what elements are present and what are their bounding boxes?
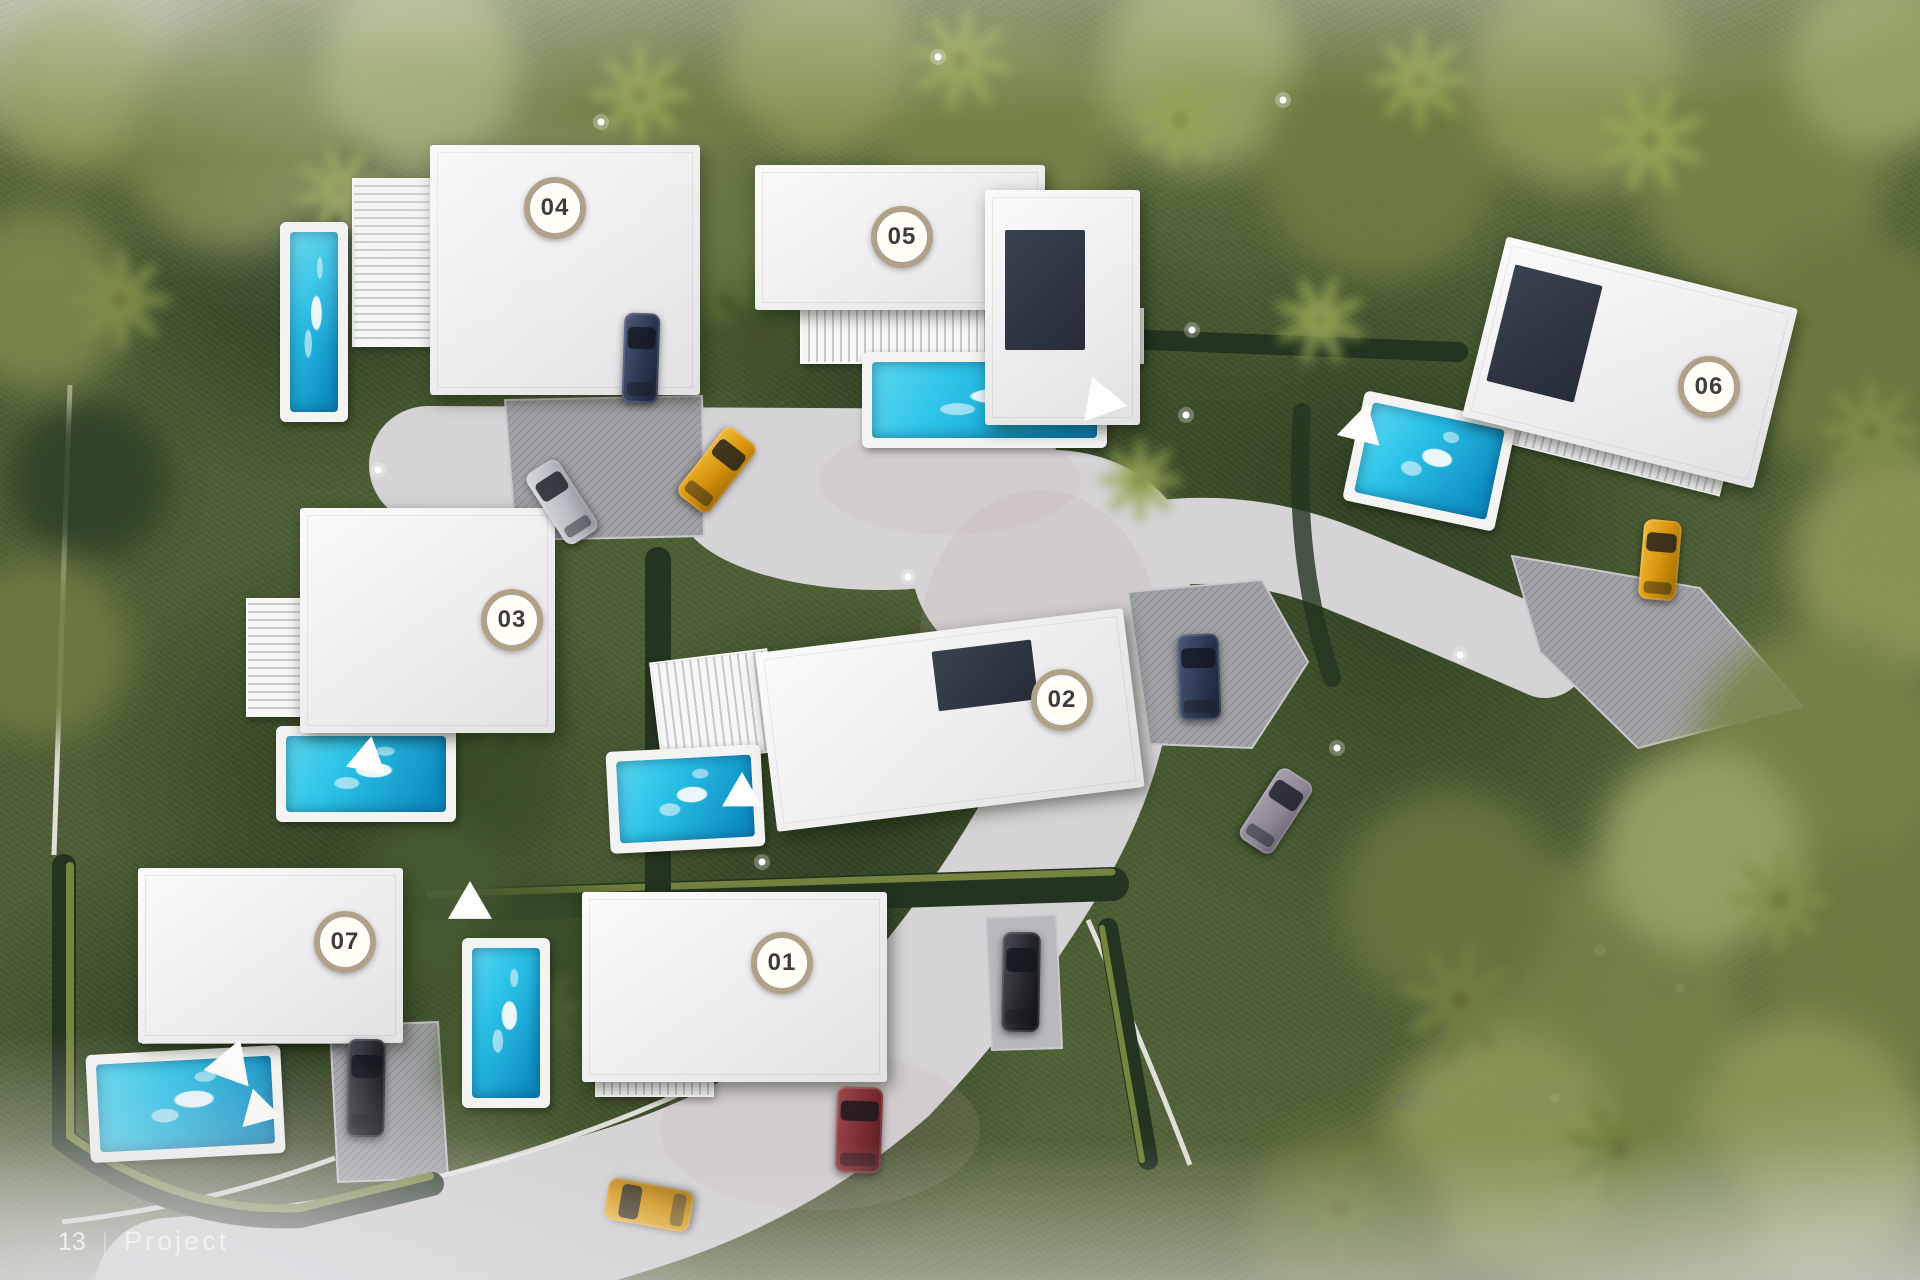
footer-section-label: Project	[124, 1226, 229, 1257]
villa-01-building	[582, 892, 887, 1082]
page-footer: 13 | Project	[58, 1226, 229, 1257]
villa-05-interior	[1005, 230, 1085, 350]
page-number: 13	[58, 1228, 86, 1257]
car-darkred-lower-road	[835, 1086, 884, 1174]
villa-02-marker[interactable]: 02	[1031, 669, 1093, 731]
villa-03-pool-deck	[276, 726, 456, 822]
villa-01-pool	[472, 948, 540, 1098]
villa-01-pool-deck	[462, 938, 550, 1108]
footer-divider: |	[102, 1229, 108, 1257]
villa-07-number: 07	[331, 928, 360, 956]
villa-04-number: 04	[541, 194, 570, 222]
villa-01-marker[interactable]: 01	[751, 932, 813, 994]
villa-06-interior	[1486, 264, 1602, 402]
villa-02-interior	[932, 640, 1039, 712]
villa-04-pool	[290, 232, 338, 412]
car-black-villa07	[346, 1039, 386, 1138]
site-plan-render: 01 02 03 04 05 06 07 13 | Project	[0, 0, 1920, 1280]
villa-04-pool-deck	[280, 222, 348, 422]
car-darkblue-villa02	[1177, 633, 1222, 720]
car-black-villa01	[1001, 932, 1041, 1033]
villa-06-marker[interactable]: 06	[1678, 356, 1740, 418]
villa-02-number: 02	[1048, 686, 1077, 714]
villa-05-marker[interactable]: 05	[871, 206, 933, 268]
villa-01-number: 01	[768, 949, 797, 977]
villa-07-marker[interactable]: 07	[314, 911, 376, 973]
villa-05-number: 05	[888, 223, 917, 251]
villa-04-terrace	[352, 178, 438, 347]
car-darkblue-villa04	[621, 312, 660, 403]
villa-06-number: 06	[1695, 373, 1724, 401]
villa-07-pool	[96, 1055, 275, 1152]
car-gold-villa06	[1638, 518, 1683, 601]
villa-03-marker[interactable]: 03	[481, 589, 543, 651]
villa-04-marker[interactable]: 04	[524, 177, 586, 239]
villa-03-number: 03	[498, 606, 527, 634]
villa-05-building-wing	[985, 190, 1140, 425]
